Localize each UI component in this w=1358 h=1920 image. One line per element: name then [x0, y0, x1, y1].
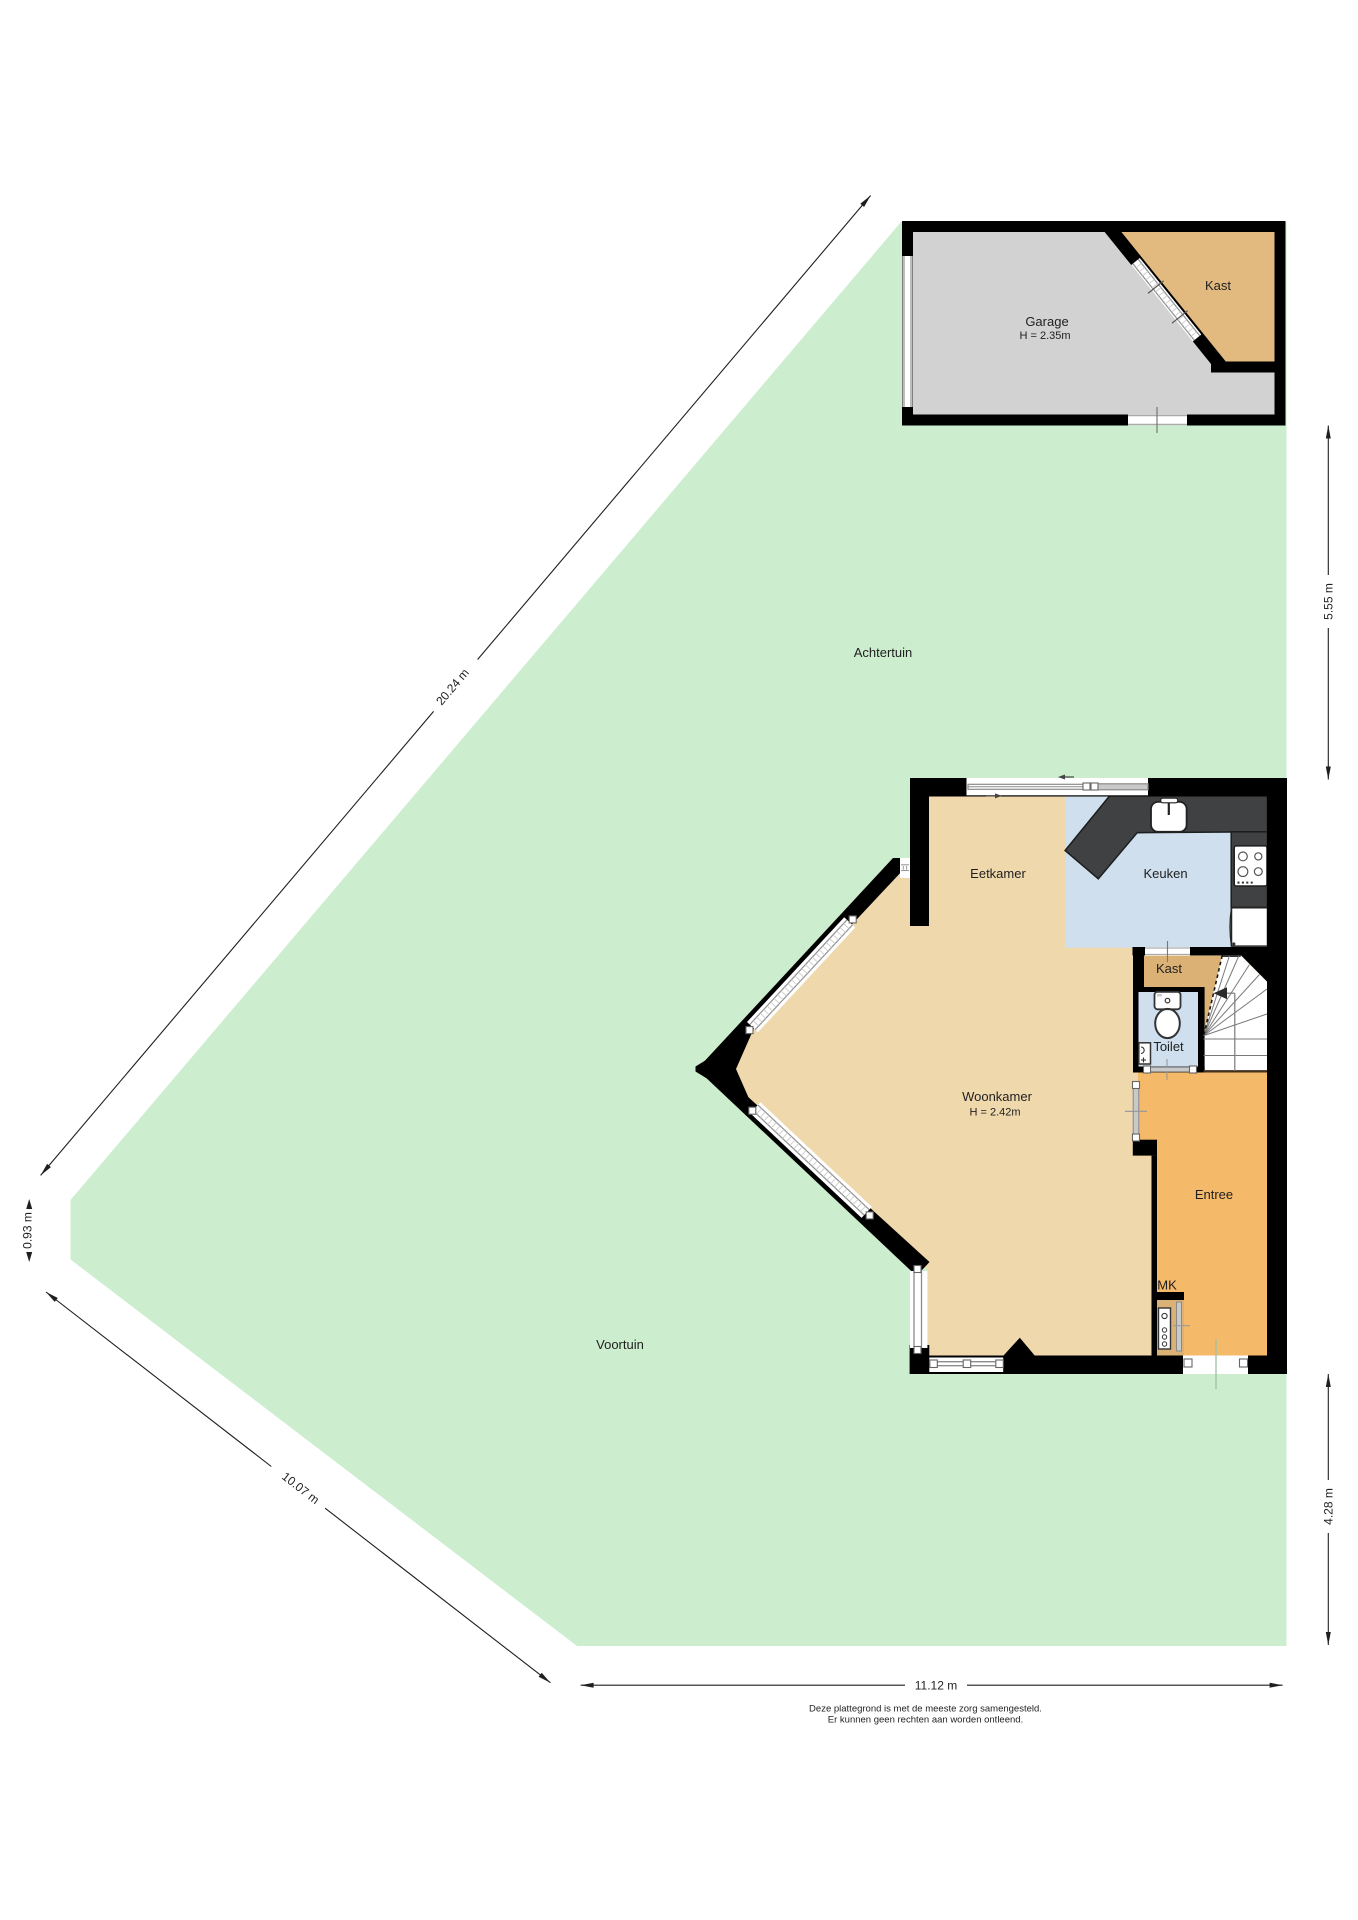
svg-text:Deze plattegrond is met de mee: Deze plattegrond is met de meeste zorg s… — [809, 1704, 1042, 1715]
svg-text:Keuken: Keuken — [1143, 866, 1187, 881]
svg-text:4.28 m: 4.28 m — [1322, 1488, 1336, 1525]
svg-text:H = 2.42m: H = 2.42m — [969, 1107, 1020, 1119]
svg-text:5.55 m: 5.55 m — [1322, 583, 1336, 620]
svg-text:Er kunnen geen rechten aan wor: Er kunnen geen rechten aan worden ontlee… — [828, 1715, 1023, 1726]
svg-text:Achtertuin: Achtertuin — [854, 645, 913, 660]
svg-text:Voortuin: Voortuin — [596, 1337, 644, 1352]
svg-text:Eetkamer: Eetkamer — [970, 866, 1026, 881]
svg-text:Kast: Kast — [1205, 278, 1231, 293]
svg-text:Kast: Kast — [1156, 961, 1182, 976]
svg-text:Entree: Entree — [1195, 1187, 1233, 1202]
svg-text:Woonkamer: Woonkamer — [962, 1089, 1033, 1104]
svg-text:Toilet: Toilet — [1153, 1039, 1184, 1054]
svg-text:0.93 m: 0.93 m — [21, 1212, 35, 1249]
svg-text:Garage: Garage — [1025, 314, 1068, 329]
svg-text:MK: MK — [1157, 1278, 1177, 1293]
svg-text:11.12 m: 11.12 m — [915, 1679, 957, 1693]
svg-text:H = 2.35m: H = 2.35m — [1019, 330, 1070, 342]
